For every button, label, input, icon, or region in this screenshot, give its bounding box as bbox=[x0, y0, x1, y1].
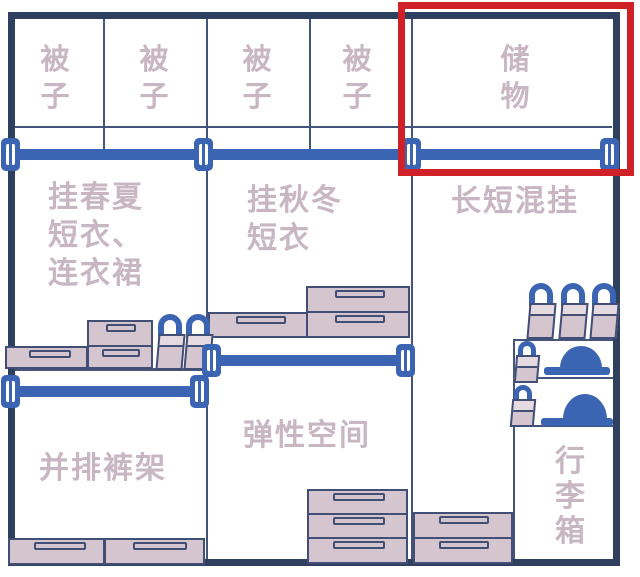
label-line: 被 bbox=[336, 41, 380, 78]
section-label-spring-summer: 挂春夏 短衣、 连衣裙 bbox=[48, 179, 144, 293]
hanging-rod bbox=[212, 355, 405, 366]
drawer-handle bbox=[335, 290, 385, 298]
label-line: 被 bbox=[133, 41, 177, 78]
wardrobe-diagram: 被 子 被 子 被 子 被 子 储 物 挂春夏 短衣、 连衣裙 挂秋冬 短衣 长… bbox=[0, 0, 640, 577]
shelf-mat bbox=[544, 367, 610, 375]
label-line: 被 bbox=[236, 41, 280, 78]
section-label-mixed-hang: 长短混挂 bbox=[451, 183, 579, 221]
drawer-handle bbox=[333, 517, 385, 525]
storage-box bbox=[87, 320, 153, 347]
section-label-flexible-space: 弹性空间 bbox=[243, 417, 371, 455]
rod-bracket-icon bbox=[194, 138, 213, 171]
handbag-icon bbox=[512, 341, 542, 383]
storage-drawer bbox=[104, 538, 205, 565]
drawer-handle bbox=[333, 493, 385, 501]
section-label-pants-rack: 并排裤架 bbox=[39, 450, 167, 488]
label-line: 连衣裙 bbox=[48, 255, 144, 293]
drawer-handle bbox=[106, 324, 136, 332]
label-line: 子 bbox=[133, 78, 177, 115]
label-line: 挂秋冬 bbox=[247, 182, 343, 220]
label-line: 短衣 bbox=[247, 220, 343, 258]
label-line: 李 bbox=[552, 479, 590, 514]
drawer-handle bbox=[439, 516, 489, 524]
label-line: 子 bbox=[336, 78, 380, 115]
quilt-compartment-label: 被 子 bbox=[336, 41, 380, 115]
label-line: 挂春夏 bbox=[48, 179, 144, 217]
section-label-autumn-winter: 挂秋冬 短衣 bbox=[247, 182, 343, 258]
drawer-handle bbox=[102, 349, 140, 357]
label-line: 子 bbox=[236, 78, 280, 115]
storage-drawer bbox=[307, 489, 408, 515]
storage-drawer bbox=[307, 537, 408, 564]
handbag-icon bbox=[155, 314, 185, 370]
storage-box bbox=[87, 345, 153, 369]
rod-bracket-icon bbox=[1, 138, 20, 171]
storage-drawer bbox=[306, 286, 410, 313]
rod-bracket-icon bbox=[396, 344, 415, 377]
storage-drawer bbox=[413, 537, 513, 564]
shelf-mat bbox=[541, 418, 613, 426]
section-label-luggage: 行 李 箱 bbox=[552, 444, 590, 549]
handbag-icon bbox=[526, 283, 556, 339]
storage-drawer bbox=[208, 312, 308, 338]
label-line: 箱 bbox=[552, 514, 590, 549]
drawer-handle bbox=[333, 541, 385, 549]
drawer-handle bbox=[236, 316, 286, 324]
storage-drawer bbox=[307, 513, 408, 539]
storage-drawer bbox=[306, 311, 410, 338]
quilt-compartment-label: 被 子 bbox=[236, 41, 280, 115]
hanging-rod bbox=[13, 386, 206, 397]
drawer-handle bbox=[335, 315, 385, 323]
storage-drawer bbox=[413, 512, 513, 539]
rod-bracket-icon bbox=[1, 375, 20, 408]
quilt-compartment-label: 被 子 bbox=[34, 41, 78, 115]
drawer-handle bbox=[439, 541, 489, 549]
quilt-compartment-label: 被 子 bbox=[133, 41, 177, 115]
highlight-box bbox=[398, 2, 634, 176]
handbag-icon bbox=[558, 283, 588, 339]
drawer-handle bbox=[34, 542, 86, 550]
label-line: 子 bbox=[34, 78, 78, 115]
label-line: 行 bbox=[552, 444, 590, 479]
rod-bracket-icon bbox=[202, 344, 221, 377]
label-line: 被 bbox=[34, 41, 78, 78]
drawer-handle bbox=[29, 350, 71, 358]
handbag-icon bbox=[508, 385, 538, 427]
storage-drawer bbox=[8, 538, 105, 565]
handbag-icon bbox=[589, 283, 619, 339]
label-line: 短衣、 bbox=[48, 217, 144, 255]
drawer-handle bbox=[133, 542, 187, 550]
storage-box bbox=[5, 346, 88, 369]
rod-bracket-icon bbox=[190, 375, 209, 408]
